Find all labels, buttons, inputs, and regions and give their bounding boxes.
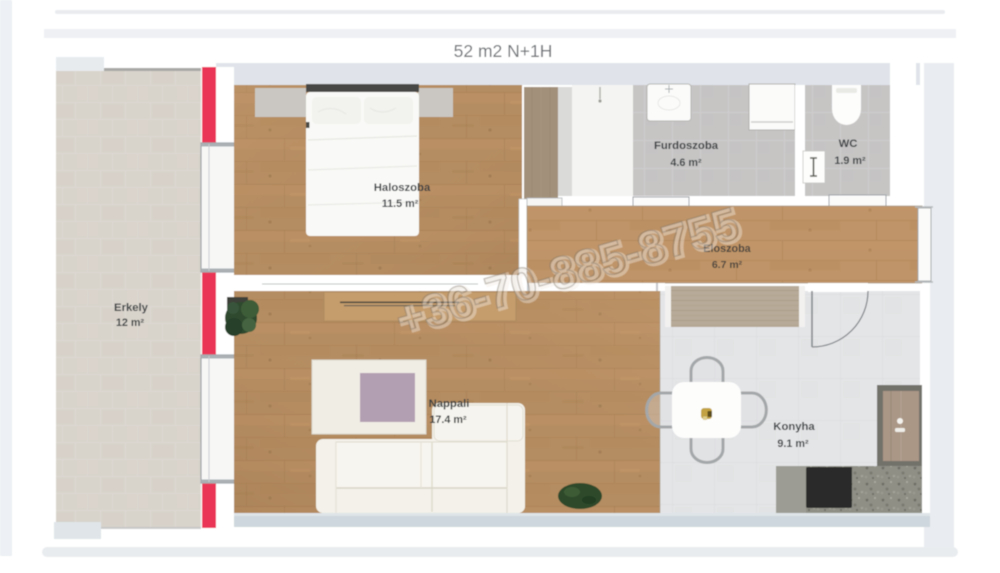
- svg-text:Haloszoba: Haloszoba: [374, 182, 431, 194]
- svg-text:9.1 m²: 9.1 m²: [777, 438, 809, 450]
- svg-text:Konyha: Konyha: [773, 421, 815, 433]
- svg-text:11.5 m²: 11.5 m²: [382, 198, 419, 210]
- svg-text:6.7 m²: 6.7 m²: [712, 259, 743, 271]
- svg-text:Erkely: Erkely: [114, 302, 149, 314]
- svg-text:Furdoszoba: Furdoszoba: [654, 140, 719, 152]
- svg-text:12 m²: 12 m²: [116, 317, 145, 329]
- svg-text:1.9 m²: 1.9 m²: [834, 155, 866, 167]
- svg-text:Nappali: Nappali: [429, 398, 470, 410]
- svg-text:4.6 m²: 4.6 m²: [670, 157, 702, 169]
- svg-text:WC: WC: [839, 138, 858, 150]
- svg-text:52 m2 N+1H: 52 m2 N+1H: [454, 41, 553, 61]
- svg-text:17.4 m²: 17.4 m²: [429, 414, 467, 426]
